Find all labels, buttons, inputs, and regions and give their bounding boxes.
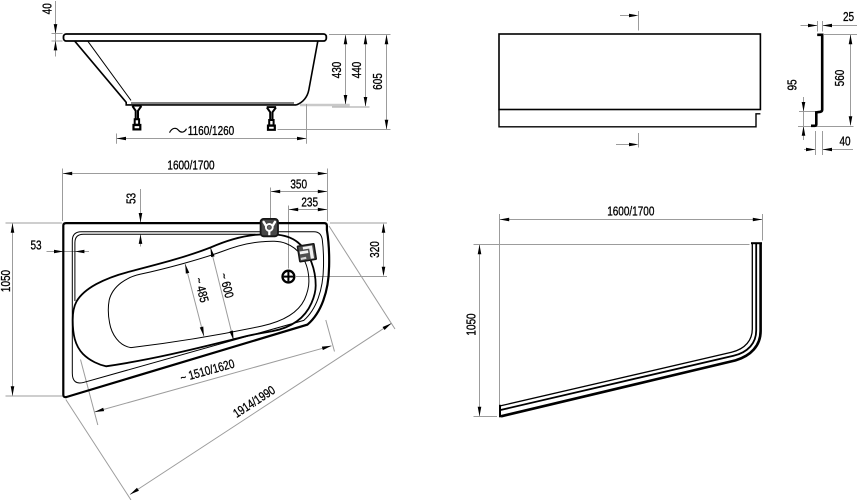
svg-text:440: 440 — [351, 62, 364, 79]
svg-text:320: 320 — [369, 241, 382, 258]
svg-text:605: 605 — [372, 73, 385, 90]
svg-text:53: 53 — [126, 193, 139, 204]
svg-text:350: 350 — [290, 178, 307, 191]
svg-text:53: 53 — [30, 240, 41, 253]
svg-text:1050: 1050 — [0, 270, 13, 292]
svg-text:95: 95 — [787, 79, 800, 90]
svg-text:1600/1700: 1600/1700 — [607, 206, 654, 219]
svg-text:235: 235 — [301, 196, 318, 209]
svg-text:430: 430 — [331, 62, 344, 79]
svg-text:25: 25 — [843, 11, 854, 24]
svg-text:1160/1260: 1160/1260 — [188, 125, 234, 138]
svg-text:1600/1700: 1600/1700 — [167, 160, 214, 173]
svg-text:40: 40 — [42, 3, 55, 14]
svg-text:1050: 1050 — [466, 313, 479, 335]
svg-text:560: 560 — [834, 70, 847, 87]
svg-text:40: 40 — [839, 136, 850, 149]
